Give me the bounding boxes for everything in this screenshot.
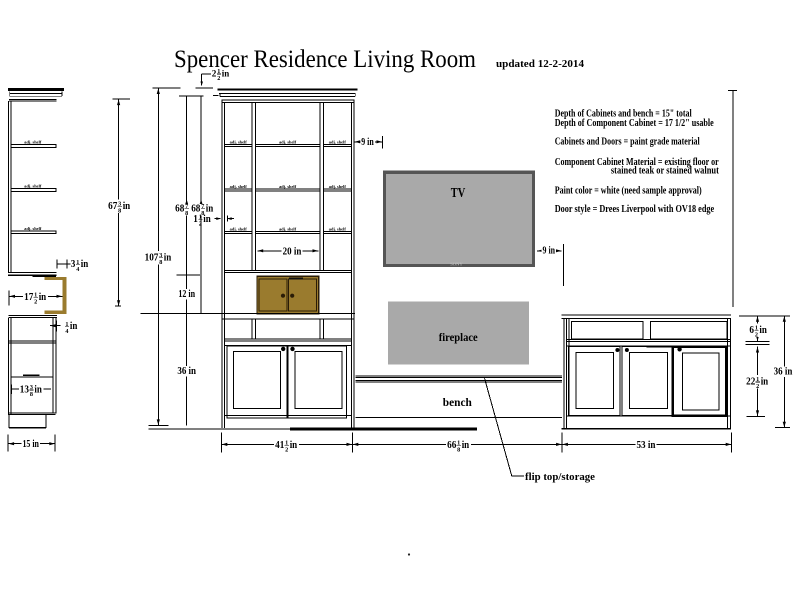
svg-text:flip top/storage: flip top/storage (525, 471, 595, 483)
svg-text:2: 2 (285, 447, 288, 454)
svg-text:12 in: 12 in (178, 289, 195, 300)
svg-text:36 in: 36 in (774, 367, 793, 378)
svg-text:SONY: SONY (450, 261, 463, 266)
svg-text:8: 8 (30, 391, 33, 398)
svg-text:8: 8 (159, 259, 162, 266)
svg-text:in: in (206, 203, 214, 214)
svg-text:36 in: 36 in (177, 366, 196, 377)
svg-text:9 in: 9 in (361, 137, 374, 148)
svg-text:in: in (123, 201, 131, 212)
svg-text:stained teak or stained walnut: stained teak or stained walnut (611, 166, 719, 177)
svg-text:adj. shelf: adj. shelf (279, 139, 297, 144)
svg-text:TV: TV (451, 185, 466, 200)
svg-text:2: 2 (756, 383, 759, 390)
svg-text:in: in (70, 321, 78, 332)
svg-text:in: in (759, 325, 767, 336)
svg-text:adj. shelf: adj. shelf (24, 184, 42, 189)
svg-text:in: in (203, 214, 211, 225)
svg-text:6: 6 (749, 325, 754, 336)
svg-text:adj. shelf: adj. shelf (230, 139, 248, 144)
svg-text:in: in (462, 440, 470, 451)
svg-text:53 in: 53 in (637, 440, 656, 451)
svg-text:4: 4 (76, 266, 79, 273)
svg-text:updated 12-2-2014: updated 12-2-2014 (496, 58, 585, 70)
svg-text:41: 41 (275, 440, 284, 451)
svg-text:bench: bench (443, 397, 473, 409)
svg-text:in: in (39, 292, 47, 303)
svg-text:in: in (81, 259, 89, 270)
svg-text:9 in: 9 in (543, 246, 556, 257)
svg-text:Cabinets and Doors = paint gra: Cabinets and Doors = paint grade materia… (555, 137, 700, 148)
svg-text:68: 68 (175, 203, 184, 214)
svg-text:in: in (222, 69, 230, 79)
svg-text:2: 2 (199, 220, 202, 227)
svg-text:Paint color = white (need samp: Paint color = white (need sample approva… (555, 185, 702, 196)
svg-text:8: 8 (457, 447, 460, 454)
svg-text:4: 4 (65, 328, 68, 335)
svg-text:adj. shelf: adj. shelf (329, 184, 347, 189)
svg-text:in: in (290, 440, 298, 451)
svg-text:adj. shelf: adj. shelf (329, 226, 347, 231)
svg-text:adj. shelf: adj. shelf (279, 184, 297, 189)
svg-text:17: 17 (24, 292, 33, 303)
svg-text:in: in (34, 385, 42, 396)
svg-text:15 in: 15 in (22, 439, 39, 450)
svg-text:1: 1 (193, 214, 198, 225)
svg-text:adj. shelf: adj. shelf (230, 226, 248, 231)
svg-text:2: 2 (217, 75, 220, 82)
svg-text:fireplace: fireplace (439, 332, 478, 344)
svg-text:2: 2 (212, 69, 217, 79)
svg-text:20 in: 20 in (283, 246, 302, 257)
svg-text:adj. shelf: adj. shelf (230, 184, 248, 189)
svg-text:adj. shelf: adj. shelf (24, 226, 42, 231)
svg-text:Depth of Component Cabinet = 1: Depth of Component Cabinet = 17 1/2" usa… (555, 118, 714, 129)
svg-text:2: 2 (34, 298, 37, 305)
svg-text:8: 8 (185, 210, 188, 217)
svg-text:in: in (761, 377, 769, 388)
svg-text:in: in (164, 252, 172, 263)
svg-text:3: 3 (71, 259, 76, 270)
svg-text:adj. shelf: adj. shelf (329, 139, 347, 144)
svg-text:2: 2 (755, 331, 758, 338)
svg-text:adj. shelf: adj. shelf (279, 226, 297, 231)
svg-text:67: 67 (108, 201, 117, 212)
svg-text:107: 107 (145, 252, 159, 263)
svg-text:22: 22 (746, 377, 755, 388)
svg-text:Door style = Drees Liverpool w: Door style = Drees Liverpool with OV18 e… (555, 204, 715, 215)
svg-text:8: 8 (118, 208, 121, 215)
svg-text:13: 13 (20, 385, 29, 396)
svg-text:adj. shelf: adj. shelf (24, 140, 42, 145)
svg-text:66: 66 (447, 440, 456, 451)
